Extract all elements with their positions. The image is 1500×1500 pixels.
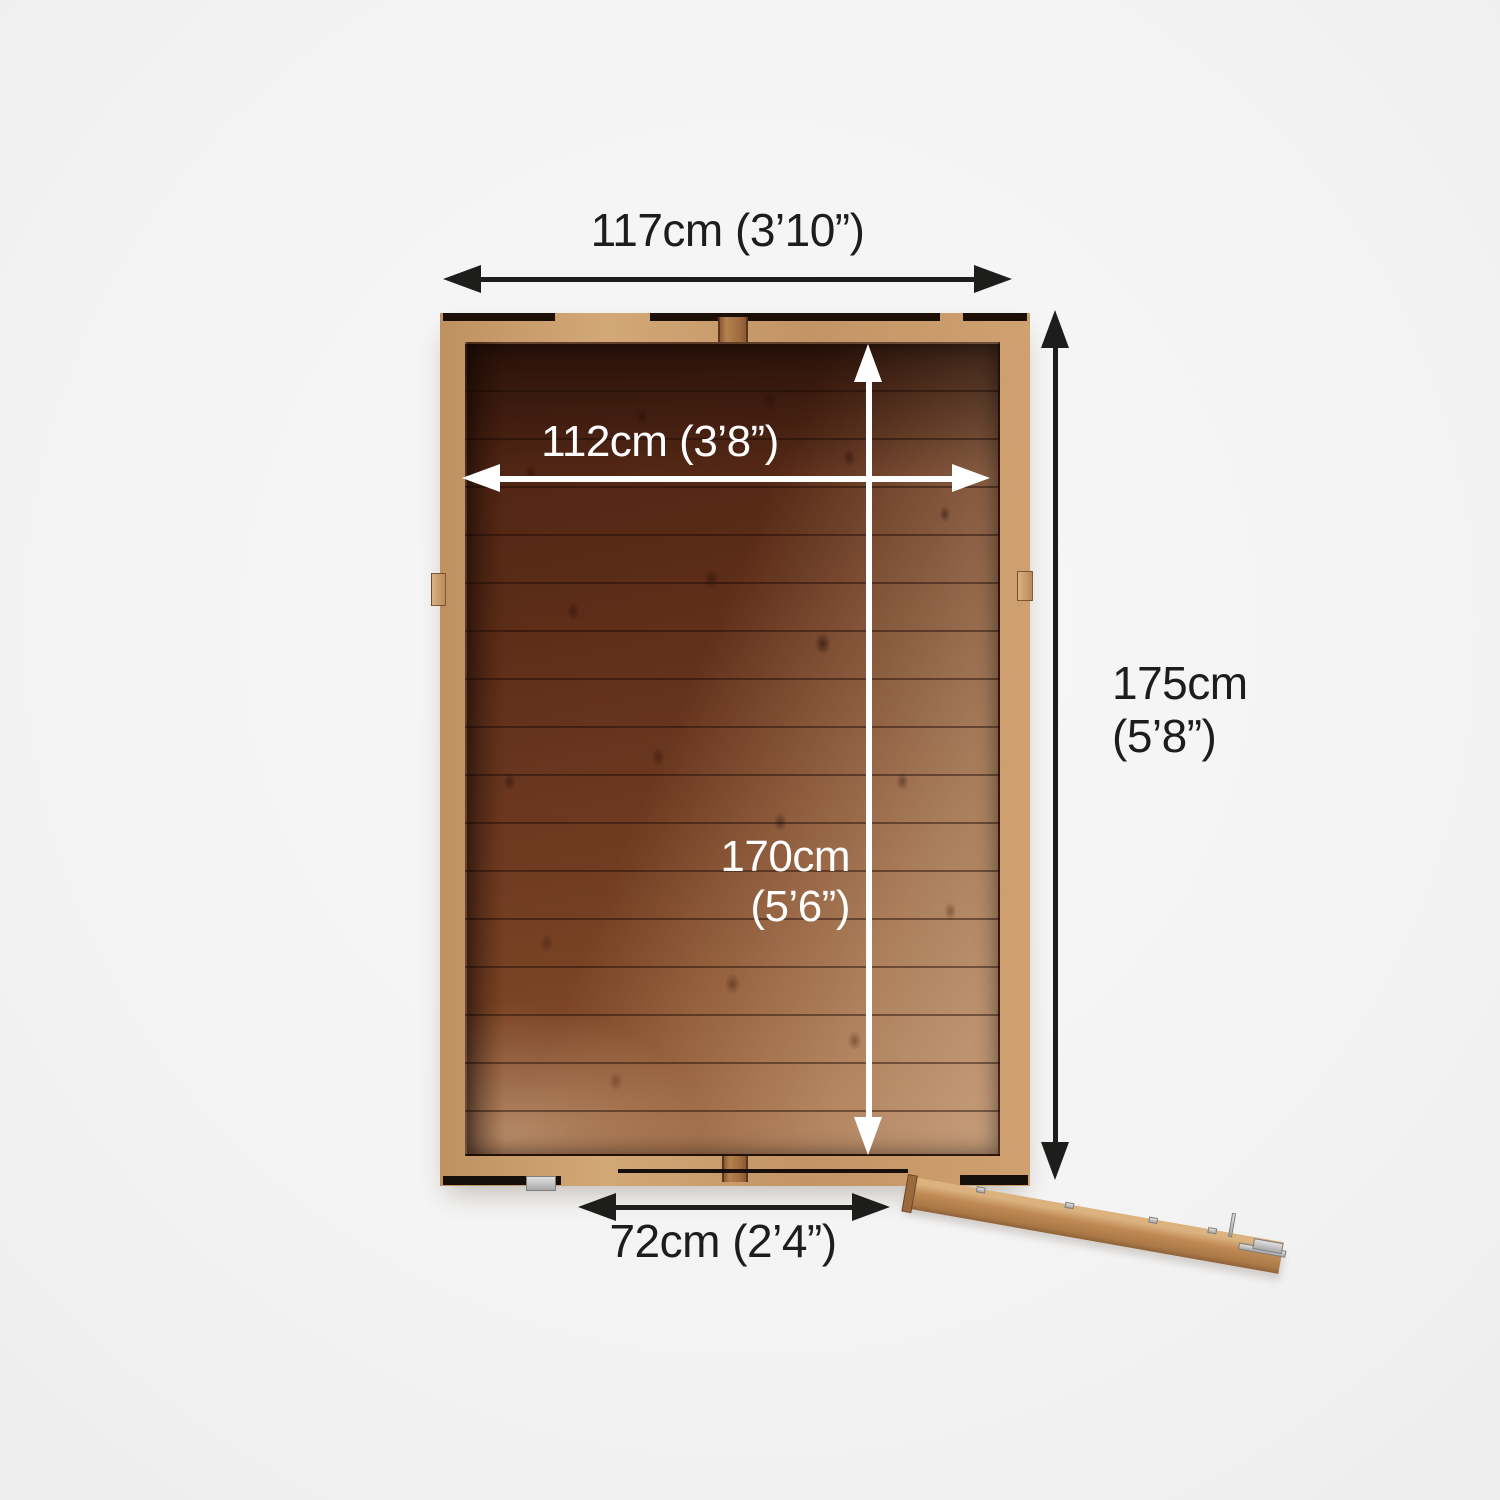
arrowhead-left-icon — [443, 265, 481, 293]
arrow-line — [1053, 342, 1058, 1148]
arrow-line — [610, 1205, 858, 1210]
detached-plank — [900, 1174, 1284, 1284]
top-edge-shadow — [963, 313, 1027, 321]
left-wall-tab — [431, 573, 446, 606]
arrowhead-left-icon — [462, 464, 500, 492]
right-wall-tab — [1017, 571, 1033, 601]
external-width-arrow-icon — [443, 264, 1012, 294]
internal-depth-imperial: (5’6”) — [580, 882, 850, 932]
external-depth-arrow-icon — [1040, 310, 1070, 1180]
arrow-line — [492, 476, 960, 482]
top-frame-divider — [718, 317, 748, 342]
arrow-line — [866, 374, 872, 1125]
shed-dimension-diagram: 117cm (3’10”) 112cm (3’8”) 170cm (5’6”) … — [0, 0, 1500, 1500]
arrow-line — [475, 277, 980, 282]
arrowhead-up-icon — [1041, 310, 1069, 348]
arrowhead-down-icon — [1041, 1142, 1069, 1180]
bottom-edge-shadow — [618, 1169, 908, 1173]
door-width-label: 72cm (2’4”) — [567, 1214, 879, 1268]
external-width-label: 117cm (3’10”) — [443, 203, 1012, 257]
arrowhead-right-icon — [952, 464, 990, 492]
arrowhead-right-icon — [974, 265, 1012, 293]
internal-width-arrow-icon — [462, 463, 990, 493]
floor-bracket — [526, 1176, 556, 1191]
external-depth-value: 175cm — [1112, 657, 1248, 710]
external-depth-label: 175cm (5’8”) — [1112, 657, 1248, 764]
top-edge-shadow — [443, 313, 555, 321]
bottom-edge-shadow — [960, 1175, 1028, 1185]
plank-clip — [976, 1186, 986, 1193]
arrowhead-up-icon — [854, 344, 882, 382]
plank-clip — [1065, 1202, 1075, 1209]
plank-board — [902, 1182, 1283, 1274]
arrowhead-down-icon — [854, 1117, 882, 1155]
internal-depth-value: 170cm — [580, 832, 850, 882]
external-depth-imperial: (5’8”) — [1112, 710, 1248, 763]
top-edge-shadow — [650, 313, 940, 321]
internal-width-label: 112cm (3’8”) — [460, 417, 860, 467]
internal-depth-label: 170cm (5’6”) — [580, 832, 850, 932]
